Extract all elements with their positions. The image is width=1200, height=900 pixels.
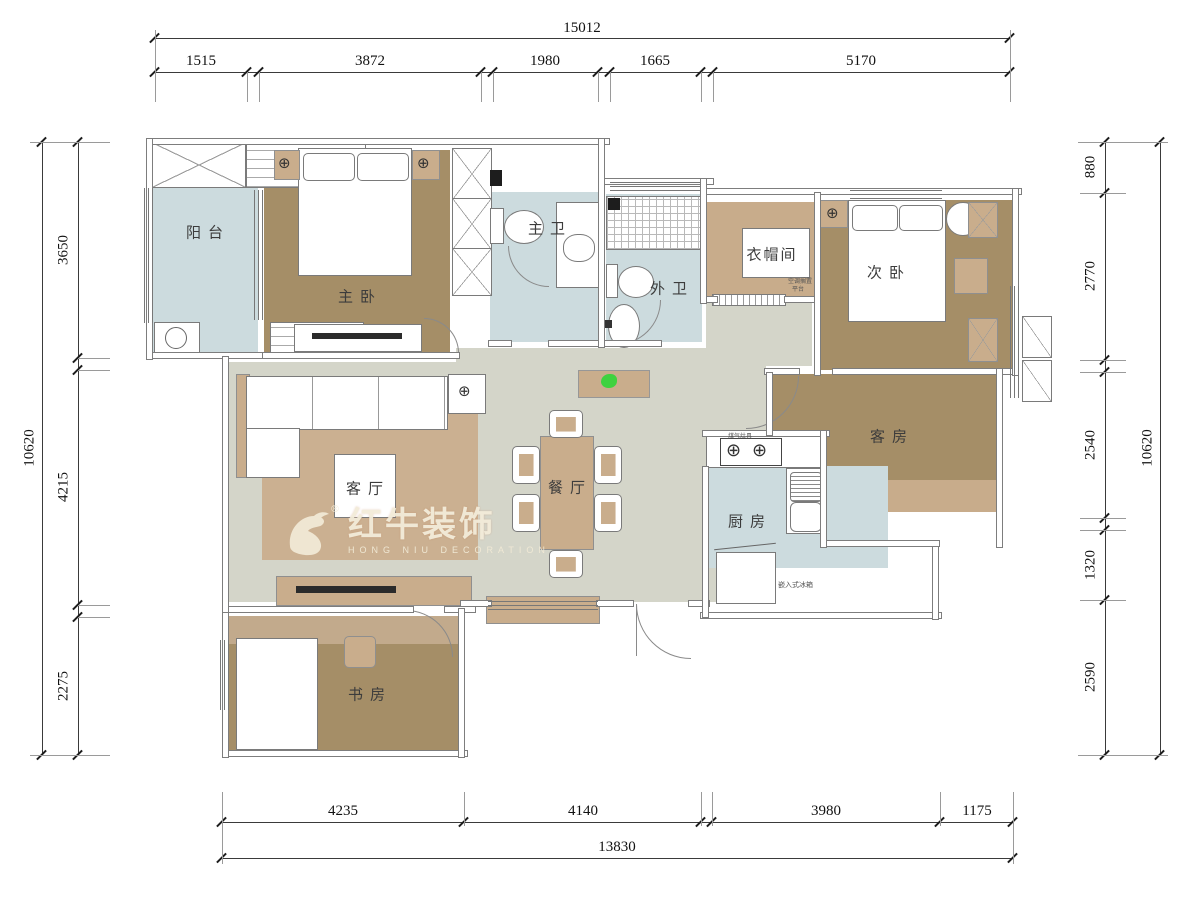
dim-line [155, 72, 1010, 73]
wall-segment [832, 368, 1018, 375]
pillow [852, 205, 898, 231]
ac-shelf-note: 平台 [792, 284, 804, 293]
dining-chair [594, 446, 622, 484]
sofa [246, 376, 448, 430]
wall-segment [146, 138, 610, 145]
wall-segment [702, 466, 709, 618]
dim-top-seg-1: 3872 [355, 53, 385, 70]
wall-pier [490, 170, 502, 186]
wall-segment [222, 750, 468, 757]
dim-left-seg-2: 2275 [56, 671, 73, 701]
watermark-subtitle: HONG NIU DECORATION [348, 545, 550, 555]
dim-bottom-seg-2: 3980 [811, 803, 841, 820]
wall-segment [548, 340, 662, 347]
window [610, 182, 700, 191]
watermark: ® 红牛装饰 HONG NIU DECORATION [280, 508, 550, 558]
pillow [899, 205, 943, 231]
wall-segment [458, 608, 465, 758]
wall-segment [596, 600, 634, 607]
faucet [604, 320, 612, 328]
ac-platform [1022, 360, 1052, 402]
dim-right-overall: 10620 [1140, 429, 1157, 467]
wardrobe [452, 248, 492, 296]
room-label-guest-bath: 外卫 [650, 278, 694, 299]
dim-ext [464, 792, 465, 826]
dim-ext [1078, 755, 1168, 756]
ceiling-target-icon: ⊕ [826, 206, 839, 221]
dim-ext [1010, 30, 1011, 102]
balcony-cabinet [152, 142, 246, 188]
toilet [618, 266, 654, 298]
dining-chair [549, 410, 583, 438]
toilet-tank [606, 264, 618, 298]
washing-machine-drum [165, 327, 187, 349]
desk [236, 638, 318, 750]
dim-bottom-overall: 13830 [598, 839, 636, 856]
wardrobe [968, 318, 998, 362]
entry-door-leaf [636, 604, 637, 656]
dim-ext [247, 72, 248, 102]
sink-drainer [790, 472, 822, 502]
dim-ext [78, 358, 110, 359]
room-label-master-bedroom: 主卧 [338, 286, 382, 307]
door-arc-master [424, 318, 459, 353]
burner-icon: ⊕ [752, 442, 767, 460]
ac-platform [1022, 316, 1052, 358]
dim-ext [78, 370, 110, 371]
shower-head [608, 198, 620, 210]
wall-segment [146, 352, 270, 359]
dim-ext [598, 72, 599, 102]
dim-ext [259, 72, 260, 102]
dim-line [1160, 142, 1161, 755]
dim-ext [481, 72, 482, 102]
wall-segment [598, 138, 605, 348]
room-label-second-bedroom: 次卧 [867, 262, 911, 283]
room-label-cloakroom: 衣帽间 [746, 244, 797, 265]
dim-ext [78, 605, 110, 606]
window [254, 190, 263, 320]
wardrobe [452, 198, 492, 250]
room-label-living: 客厅 [346, 478, 390, 499]
corridor-floor [706, 302, 812, 366]
dim-right-seg-4: 2590 [1083, 662, 1100, 692]
sofa-chaise [246, 428, 300, 478]
room-label-study: 书房 [348, 684, 392, 705]
wardrobe [452, 148, 492, 200]
pillow [357, 153, 409, 181]
ceiling-target-icon: ⊕ [278, 156, 291, 171]
dining-chair [594, 494, 622, 532]
wall-segment [222, 606, 414, 613]
window [144, 188, 153, 323]
wardrobe [968, 202, 998, 238]
hongniu-bull-logo [280, 508, 332, 558]
sink-basin [790, 502, 822, 532]
desk-chair [344, 636, 376, 668]
ceiling-target-icon: ⊕ [417, 156, 430, 171]
window [1010, 286, 1019, 398]
dim-line [78, 142, 79, 755]
dim-ext [610, 72, 611, 102]
dim-top-overall: 15012 [563, 20, 601, 37]
dim-ext [1013, 792, 1014, 864]
dim-bottom-seg-3: 1175 [962, 803, 991, 820]
fridge-label: 嵌入式冰箱 [778, 580, 813, 590]
dim-ext [222, 792, 223, 864]
tv-screen [312, 333, 402, 339]
door-arc-entry [636, 604, 691, 659]
dim-line [155, 38, 1010, 39]
wall-segment [996, 368, 1003, 548]
dim-left-overall: 10620 [22, 429, 39, 467]
entry-marker-dot [601, 374, 617, 388]
dim-top-seg-4: 5170 [846, 53, 876, 70]
dim-top-seg-3: 1665 [640, 53, 670, 70]
wall-segment [222, 356, 229, 614]
dining-chair [549, 550, 583, 578]
room-label-master-bath: 主卫 [528, 218, 572, 239]
fridge [716, 552, 776, 604]
dim-ext [30, 142, 110, 143]
dim-line [1105, 142, 1106, 755]
wall-segment [826, 540, 940, 547]
tv-screen [296, 586, 396, 593]
dim-right-seg-0: 880 [1083, 156, 1100, 179]
floor-plan-canvas: 15012 1515 3872 1980 1665 5170 4235 4140 [0, 0, 1200, 900]
pillow [303, 153, 355, 181]
room-label-balcony: 阳台 [186, 222, 230, 243]
dim-top-seg-2: 1980 [530, 53, 560, 70]
wall-segment [488, 340, 512, 347]
dim-line [42, 142, 43, 755]
wall-segment [700, 178, 707, 304]
dim-top-seg-0: 1515 [186, 53, 216, 70]
wall-segment [932, 546, 939, 620]
registered-mark: ® [330, 504, 340, 515]
shower-area [606, 196, 704, 250]
dim-ext [1080, 372, 1126, 373]
dim-bottom-seg-0: 4235 [328, 803, 358, 820]
room-label-kitchen: 厨房 [728, 511, 772, 532]
dim-line [222, 822, 1013, 823]
dim-ext [1080, 360, 1126, 361]
wall-segment [820, 430, 827, 548]
watermark-brand: 红牛装饰 [348, 508, 550, 544]
window [850, 190, 942, 199]
dim-ext [78, 617, 110, 618]
dim-left-seg-1: 4215 [56, 472, 73, 502]
dim-ext [701, 72, 702, 102]
dim-line [222, 858, 1013, 859]
dim-right-seg-3: 1320 [1083, 550, 1100, 580]
dim-ext [940, 792, 941, 826]
dim-ext [1080, 518, 1126, 519]
wall-segment [766, 372, 773, 436]
dim-ext [1080, 600, 1126, 601]
dim-right-seg-2: 2540 [1083, 430, 1100, 460]
dim-ext [30, 755, 110, 756]
burner-icon: ⊕ [726, 442, 741, 460]
dim-ext [493, 72, 494, 102]
stove-label: 煤气灶具 [728, 431, 752, 440]
dim-ext [1078, 142, 1168, 143]
nightstand [954, 258, 988, 294]
dim-ext [1080, 193, 1126, 194]
dim-ext [701, 792, 702, 826]
wall-segment [814, 192, 821, 376]
dim-bottom-seg-1: 4140 [568, 803, 598, 820]
window [220, 640, 229, 710]
wall-segment [262, 352, 460, 359]
wall-segment [700, 612, 942, 619]
window [488, 601, 598, 610]
dim-ext [712, 792, 713, 826]
dim-right-seg-1: 2770 [1083, 261, 1100, 291]
dim-ext [155, 30, 156, 102]
room-label-dining: 餐厅 [548, 477, 592, 498]
dim-ext [1080, 530, 1126, 531]
toilet-tank [490, 208, 504, 244]
dining-chair [512, 446, 540, 484]
dim-ext [713, 72, 714, 102]
dim-left-seg-0: 3650 [56, 235, 73, 265]
room-label-guest-room: 客房 [870, 426, 914, 447]
door-threshold [712, 294, 786, 306]
ceiling-target-icon: ⊕ [458, 384, 471, 399]
